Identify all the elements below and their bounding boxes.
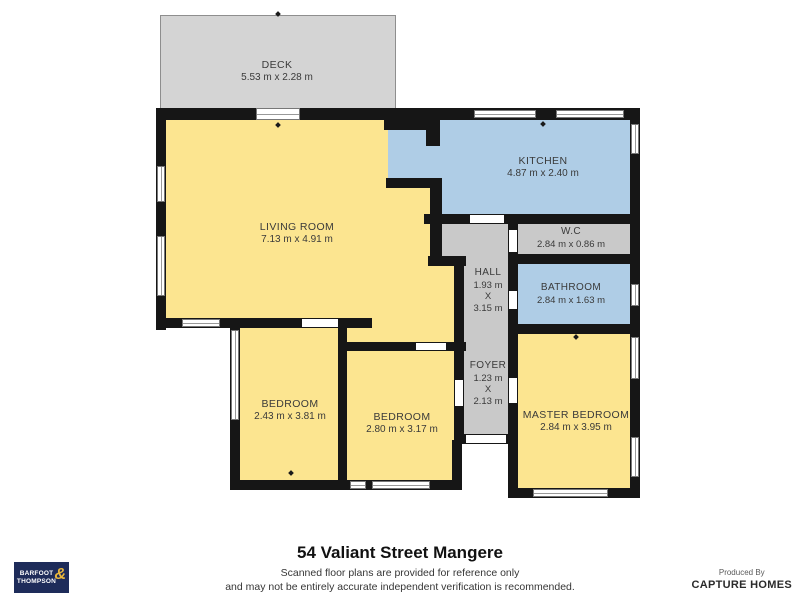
- master-bedroom-window: [631, 437, 639, 477]
- room-dimensions: 7.13 m x 4.91 m: [260, 234, 334, 247]
- room-label-kitchen: KITCHEN 4.87 m x 2.40 m: [507, 155, 579, 181]
- disclaimer-line-1: Scanned floor plans are provided for ref…: [0, 567, 800, 579]
- wc-door-opening: [509, 230, 517, 252]
- room-label-hall: HALL 1.93 m X 3.15 m: [473, 267, 502, 315]
- bedroom-2-window: [372, 481, 430, 489]
- bathroom-window: [631, 284, 639, 306]
- master-bedroom-window: [533, 489, 608, 497]
- disclaimer-line-2: and may not be entirely accurate indepen…: [0, 581, 800, 593]
- room-label-living-room: LIVING ROOM 7.13 m x 4.91 m: [260, 221, 334, 247]
- room-dimension-width: 1.23 m: [470, 372, 506, 384]
- wall-segment: [508, 324, 640, 334]
- room-name: BEDROOM: [254, 398, 326, 411]
- room-dimension-height: 3.15 m: [473, 303, 502, 315]
- logo-text-line2: THOMPSON: [17, 578, 56, 585]
- master-bedroom-window: [631, 337, 639, 379]
- room-name: MASTER BEDROOM: [523, 409, 630, 422]
- kitchen-window: [556, 110, 624, 118]
- room-dimensions: 5.53 m x 2.28 m: [241, 72, 313, 85]
- room-name: BATHROOM: [537, 282, 605, 295]
- wall-segment: [156, 108, 166, 330]
- living-room-area: [163, 116, 393, 322]
- room-dimension-separator: X: [473, 291, 502, 303]
- barfoot-thompson-logo: BARFOOT THOMPSON &: [14, 562, 69, 593]
- deck-door-window: [256, 108, 300, 120]
- wall-segment: [508, 214, 518, 498]
- wall-segment: [452, 440, 462, 490]
- logo-ampersand: &: [54, 566, 66, 584]
- bedroom-1-door-opening: [302, 319, 338, 327]
- produced-by-label: Produced By: [692, 568, 792, 577]
- room-dimensions: 4.87 m x 2.40 m: [507, 168, 579, 181]
- wall-segment: [230, 480, 348, 490]
- floor-plan-page: DECK 5.53 m x 2.28 m LIVING ROOM 7.13 m …: [0, 0, 800, 600]
- room-name: W.C: [537, 226, 605, 239]
- living-room-area-ext: [386, 186, 434, 322]
- living-room-window: [157, 166, 165, 202]
- kitchen-side-window: [631, 124, 639, 154]
- living-room-window: [157, 236, 165, 296]
- master-bedroom-door-opening: [509, 378, 517, 403]
- address-title: 54 Valiant Street Mangere: [0, 543, 800, 563]
- bedroom-2-window: [350, 481, 366, 489]
- room-label-deck: DECK 5.53 m x 2.28 m: [241, 59, 313, 85]
- room-dimensions: 2.43 m x 3.81 m: [254, 411, 326, 424]
- room-label-master-bedroom: MASTER BEDROOM 2.84 m x 3.95 m: [523, 409, 630, 435]
- room-label-bedroom-2: BEDROOM 2.80 m x 3.17 m: [366, 411, 438, 437]
- bathroom-door-opening: [509, 291, 517, 309]
- wall-segment: [454, 260, 464, 444]
- room-dimension-separator: X: [470, 384, 506, 396]
- entrance-door-opening: [466, 435, 506, 443]
- room-name: DECK: [241, 59, 313, 72]
- room-label-wc: W.C 2.84 m x 0.86 m: [537, 226, 605, 250]
- kitchen-door-opening: [470, 215, 504, 223]
- room-dimensions: 2.84 m x 1.63 m: [537, 294, 605, 306]
- room-dimension-width: 1.93 m: [473, 279, 502, 291]
- room-dimensions: 2.80 m x 3.17 m: [366, 424, 438, 437]
- wall-segment: [424, 214, 640, 224]
- room-dimensions: 2.84 m x 0.86 m: [537, 238, 605, 250]
- room-name: BEDROOM: [366, 411, 438, 424]
- bedroom-1-window: [231, 330, 239, 420]
- bedroom-2-door-opening: [455, 380, 463, 406]
- wall-segment: [508, 254, 640, 264]
- producer-credit: Produced By CAPTURE HOMES: [692, 568, 792, 591]
- wall-segment: [426, 108, 440, 146]
- room-dimension-height: 2.13 m: [470, 396, 506, 408]
- wall-segment: [384, 108, 432, 130]
- bedroom-2-door-opening: [416, 343, 446, 350]
- room-dimensions: 2.84 m x 3.95 m: [523, 422, 630, 435]
- producer-name: CAPTURE HOMES: [692, 579, 792, 591]
- room-label-foyer: FOYER 1.23 m X 2.13 m: [470, 360, 506, 408]
- kitchen-arm-area: [388, 126, 430, 180]
- room-label-bathroom: BATHROOM 2.84 m x 1.63 m: [537, 282, 605, 306]
- wall-segment: [338, 342, 466, 351]
- room-name: FOYER: [470, 360, 506, 373]
- living-room-window: [182, 319, 220, 327]
- logo-text-line1: BARFOOT: [20, 570, 54, 577]
- room-name: KITCHEN: [507, 155, 579, 168]
- kitchen-window: [474, 110, 536, 118]
- room-name: LIVING ROOM: [260, 221, 334, 234]
- room-name: HALL: [473, 267, 502, 280]
- room-label-bedroom-1: BEDROOM 2.43 m x 3.81 m: [254, 398, 326, 424]
